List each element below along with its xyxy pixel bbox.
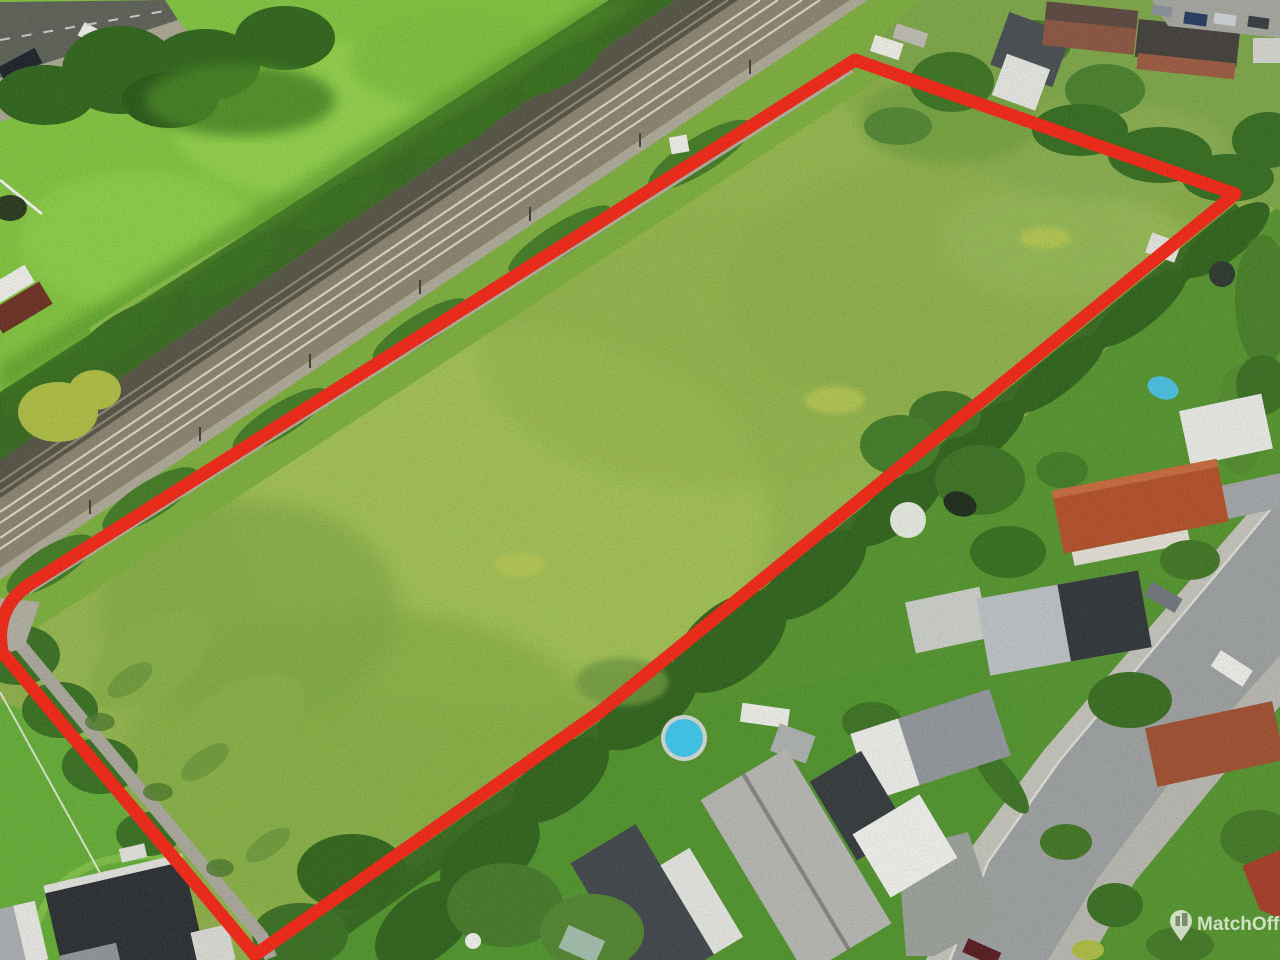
svg-text:MatchOffice: MatchOffice bbox=[1197, 914, 1280, 935]
